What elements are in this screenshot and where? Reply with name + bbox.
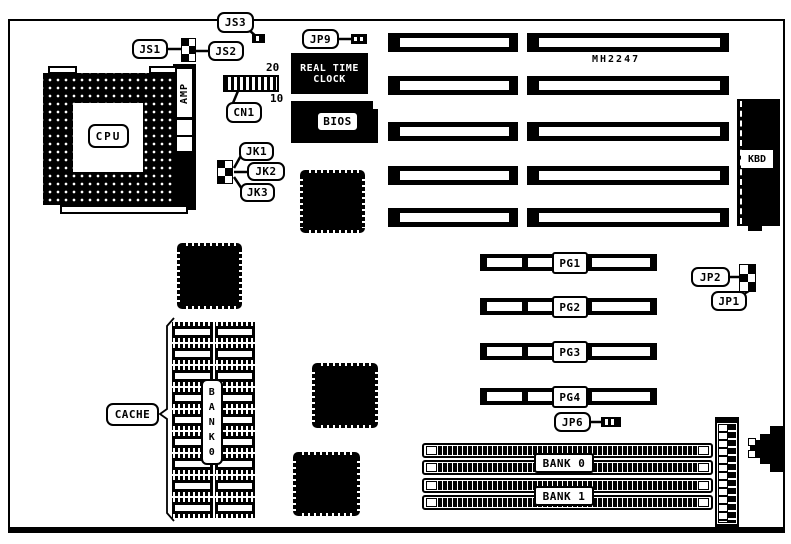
jumper-label-js3: JS3 <box>217 12 254 33</box>
connector-label-cn1: CN1 <box>226 102 262 123</box>
jp1-jp2-jumper-block <box>739 264 756 292</box>
jumper-label-jk2: JK2 <box>247 162 285 181</box>
pg2-label: PG2 <box>552 296 588 318</box>
bios-label: BIOS <box>316 111 359 132</box>
motherboard-diagram: CPU AMP JS3 JS1 JS2 20 10 CN1 JP9 REAL T… <box>0 0 791 544</box>
bank0-label: BANK 0 <box>534 453 594 473</box>
jumper-label-jk3: JK3 <box>240 183 275 202</box>
jumper-label-jp9: JP9 <box>302 29 339 49</box>
jp9-jumper-block <box>351 34 367 44</box>
cpu-label: CPU <box>88 124 129 148</box>
pg3-label: PG3 <box>552 341 588 363</box>
cache-bank0-vertical-label: B A N K 0 <box>201 379 223 465</box>
js1-js2-jumper-block <box>181 38 196 62</box>
pg1-label: PG1 <box>552 252 588 274</box>
jumper-label-jp6: JP6 <box>554 412 591 432</box>
jumper-label-jk1: JK1 <box>239 142 274 161</box>
jumper-label-jp2: JP2 <box>691 267 730 287</box>
pg4-label: PG4 <box>552 386 588 408</box>
js3-jumper-block <box>252 34 265 43</box>
cn1-pin-header <box>223 75 279 92</box>
cache-label: CACHE <box>106 403 159 426</box>
jumper-label-jp1: JP1 <box>711 291 747 311</box>
leader-lines <box>0 0 791 544</box>
bank1-label: BANK 1 <box>534 486 594 506</box>
jumper-label-js2: JS2 <box>208 41 244 61</box>
cache-brace <box>160 318 174 521</box>
jk-jumper-block <box>217 160 233 184</box>
jumper-label-js1: JS1 <box>132 39 168 59</box>
jp6-jumper-block <box>601 417 621 427</box>
